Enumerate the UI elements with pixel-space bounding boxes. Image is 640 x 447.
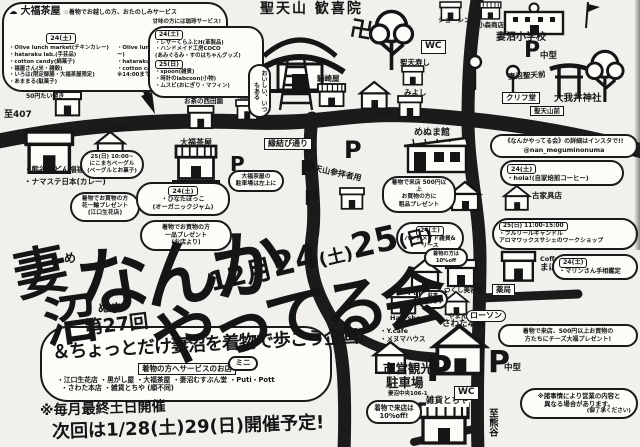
cliffdo-label: クリフ堂 [502, 92, 540, 104]
day-label-sat: 24(土) [507, 164, 536, 174]
bubble-line: ・マリンさん手相鑑定 [559, 268, 631, 276]
day-label-sat: 24(土) [46, 33, 76, 43]
wc-label: WC [421, 40, 446, 54]
stall-item: (あみぐるみ・すのはちゃんグッズ) [155, 53, 257, 60]
building-hachidori [360, 82, 389, 109]
fukufuku-label: ・熊谷うどん福福 [24, 166, 84, 175]
manji-icon: 卍 [348, 16, 374, 45]
namaste-label: ・ナマステ日本(カレー) [24, 178, 106, 187]
wc-label: WC [454, 386, 479, 400]
daifuku-service-note: ☆着物でお越しの方、おたのしみサービス [63, 9, 176, 16]
stall-item: ・hataraku lab.(手芸品) [9, 52, 113, 59]
fleur-workshop-bubble: 25(日) 11:00-15:00 ・フルリールキャンドル アロマワックスサシェ… [492, 218, 638, 250]
nicomachi-bubble: 25(日) 10:00~ にこまちベーグル (ベーグルとお菓子) [80, 150, 144, 179]
building-miyoshi [398, 96, 422, 117]
bubble-line: にこまちベーグル [87, 161, 137, 168]
building-komori [480, 2, 501, 19]
daifuku-shop-name: 大福茶屋 [20, 6, 60, 17]
tsukushi-label: つくし美容室 [444, 287, 483, 294]
monthly-schedule-note: ※毎月最終土日開催 [40, 400, 166, 418]
bubble-line: 着物で来店 500円以上 [389, 180, 449, 194]
parking-mark: P [524, 40, 540, 62]
eguchi-label: 江口生花店 [96, 124, 130, 132]
bubble-line: お買物の方に [389, 194, 449, 201]
stall-item: ・cotton candy(綿菓子) [9, 59, 113, 66]
miyoshi-label: みよし [404, 89, 427, 98]
bubble-line: (江口生花店) [77, 210, 133, 217]
enmusubi-street-label: 縁結び通り [264, 138, 312, 150]
building-daifuku-chaya [176, 146, 216, 179]
bubble-line: ※諸事情により営業の内容と [527, 392, 631, 400]
daifuku-map-label: 大福茶屋 [180, 138, 212, 147]
service-shops-line2: ・さわた本店 ・雑貨とちや (順不同) [61, 384, 325, 392]
instagram-handle: @nan_meguminonuma [497, 146, 631, 154]
day-label-sun: 25(日) [155, 60, 183, 70]
building-nishidaen [188, 106, 214, 128]
bubble-line: 着物で来店、500円以上お買物の [505, 328, 631, 336]
kisakiya-label: 騎崎屋 [317, 75, 340, 84]
bubble-line: 駐車場は左上に [235, 181, 277, 188]
stall-item: ・spoon(雑貨) [155, 69, 257, 76]
stall-item: ・ムスビ(おにぎり・マフィン) [155, 83, 257, 90]
bubble-line: 方たちにチーズ大福プレゼント! [505, 336, 631, 344]
temple-name-label: 聖天山 歓喜院 [260, 1, 363, 17]
building-small-shop [340, 188, 364, 209]
taiyaki-price-label: 50円たい焼き [26, 94, 64, 101]
stall-item: ・時計のlabcoon(小物) [155, 76, 257, 83]
disclaimer-bubble: ※諸事情により営業の内容と 異なる場合があります。 (御了承ください) [520, 388, 638, 419]
flower-gift-bubble: 着物でお買物の方 花一輪プレゼント (江口生花店) [70, 192, 140, 222]
bubble-line: (オーガニックジャム) [143, 204, 223, 212]
furukagu-label: 古家具店 [532, 192, 562, 201]
daifuku-service-note2: 甘味の方には珈琲サービス! [9, 19, 221, 26]
bubble-line: 粗品プレゼント [389, 202, 449, 209]
day-label-sat: 24(土) [168, 186, 197, 196]
scan-edge-shadow [634, 0, 640, 250]
to-kumagaya-label: 至熊谷 [486, 408, 497, 437]
building-menumakan [404, 138, 468, 172]
bubble-line: アロマワックスサシェのワークショップ [499, 238, 631, 245]
temple-front-label: 聖天山前 [530, 106, 564, 116]
menumakan-gift-bubble: 着物で来店 500円以上 お買物の方に 粗品プレゼント [382, 176, 456, 213]
instagram-bubble: 《なんかやってる会》の詳細はインスタで!! @nan_meguminonuma [490, 134, 638, 158]
menumakan-label: めぬま館 [414, 128, 450, 138]
building-shouten-zushi [402, 66, 424, 85]
day-label-sat: 24(土) [559, 258, 587, 268]
hinatabokko-bubble: 24(土) ・ひなたぼっこ (オーガニックジャム) [136, 182, 230, 216]
bubble-line: (御了承ください) [527, 408, 631, 415]
building-kisakiya [318, 84, 345, 106]
parking-mark: P [304, 188, 319, 208]
hola-bubble: 24(土) ・hola!(自家焙煎コーヒー) [500, 160, 624, 186]
bubble-line: 異なる場合があります。 [527, 400, 631, 408]
steam-bun-icon: ☁ [9, 7, 18, 17]
komori-label: 小森商店 [478, 22, 504, 29]
building-elementary-school [505, 4, 563, 35]
bubble-line: (ベーグルとお菓子) [87, 168, 137, 175]
hand-drawn-event-map: ☁ 大福茶屋 ☆着物でお越しの方、おたのしみサービス 甘味の方には珈琲サービス!… [0, 0, 640, 447]
shoshin-label: ショーシン [438, 17, 470, 24]
nishidaen-label: お茶の西田園 [184, 98, 223, 105]
parking-mark: P [344, 138, 362, 162]
parking-mark: P [426, 352, 452, 388]
city-parking-label2: 駐車場 [386, 376, 424, 390]
shrine-label: 大我井神社 [554, 94, 602, 105]
building-furukagu [504, 186, 530, 210]
bubble-line: ・hola!(自家焙煎コーヒー) [507, 174, 617, 182]
parking-size-label: 中型 [504, 364, 521, 374]
route-407-label: 至407 [4, 110, 32, 120]
stall-item: ・あままる(駄菓子) [9, 79, 113, 86]
day-label-sat: 24(土) [155, 30, 183, 40]
building-tochiya [420, 404, 468, 443]
bubble-line: ・ひなたぼっこ [143, 196, 223, 204]
bubble-line: 25(日) 10:00~ [87, 154, 137, 161]
bubble-line: 着物で来店は [373, 404, 415, 412]
stall-item: ・ハンドメイド工房COCO [155, 46, 257, 53]
kimono-10off-bubble: 着物で来店は 10%off! [366, 400, 422, 424]
pharmacy-label: 薬局 [492, 284, 515, 296]
palm-reading-bubble: 24(土) ・マリンさん手相鑑定 [552, 254, 638, 280]
tasty-bubble: おいしい、いつもある [248, 64, 271, 118]
bubble-line: 着物の方は [428, 251, 464, 258]
lawson-label: ローソン [466, 310, 506, 322]
bubble-line: 10%off! [373, 412, 415, 420]
daifuku-parking-bubble: 大福茶屋の 駐車場は左上に [228, 170, 284, 192]
mini-bubble: ミニ [228, 356, 258, 371]
day-label-sun: 25(日) 11:00-15:00 [499, 222, 568, 231]
flag-icon [586, 2, 600, 28]
tasty-bubble-text: おいしい、いつもある [252, 70, 267, 112]
shouten-zushi-label: 聖天寿し [400, 59, 430, 68]
parking-size-label: 中型 [540, 52, 557, 62]
city-parking-note: 妻沼中央106-1 [388, 391, 428, 397]
vendors-bubble: 24(土) ・レザーくらふとH(革製品) ・ハンドメイド工房COCO (あみぐる… [148, 26, 264, 98]
building-mahoroba [502, 252, 535, 281]
bubble-line: 《なんかやってる会》の詳細はインスタで!! [497, 138, 631, 146]
cheese-daifuku-bubble: 着物で来店、500円以上お買物の 方たちにチーズ大福プレゼント! [498, 324, 638, 347]
